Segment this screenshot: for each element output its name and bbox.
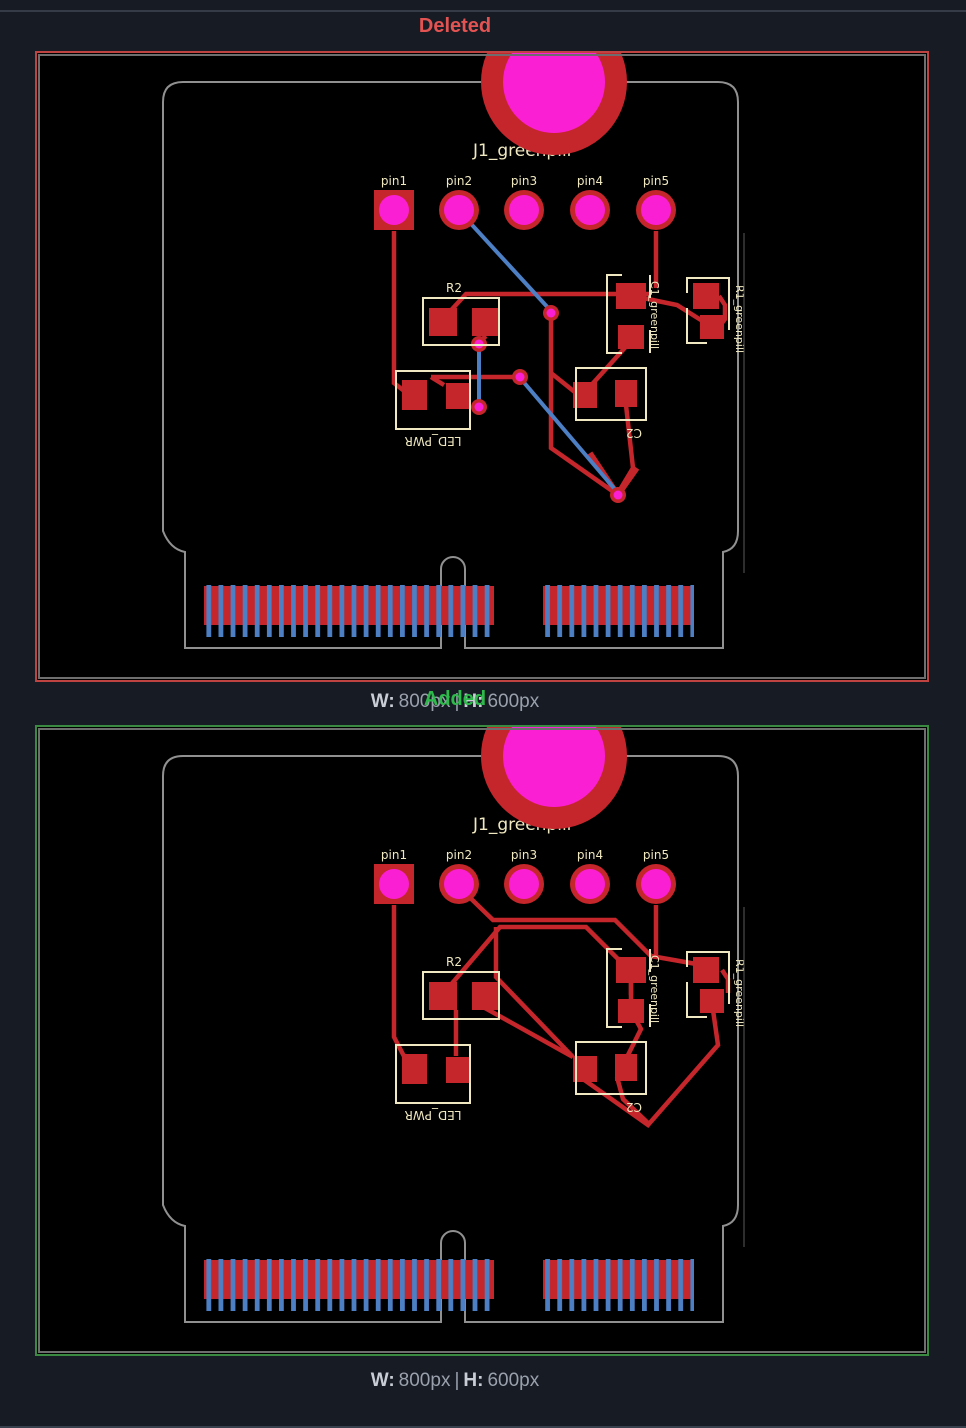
c1-greenpill-label: C1_greenpill — [648, 955, 661, 1023]
deleted-panel: J1_greenpill — [35, 51, 929, 682]
pin4-label: pin4 — [577, 848, 603, 862]
c1-greenpill-label: C1_greenpill — [648, 281, 661, 349]
deleted-title: Deleted — [0, 13, 910, 39]
led-pwr-label: LED_PWR — [405, 434, 462, 448]
edge-fingers-right — [543, 585, 694, 637]
deleted-caption-row: W:800px|H:600px Added — [0, 690, 910, 714]
c2-label: C2 — [626, 1100, 642, 1114]
top-divider — [0, 0, 966, 12]
pin2-label: pin2 — [446, 174, 472, 188]
r2-label: R2 — [446, 955, 462, 969]
added-title: Added — [0, 686, 910, 712]
pin3-label: pin3 — [511, 174, 537, 188]
edge-fingers-left — [204, 585, 494, 637]
added-dimensions: W:800px|H:600px — [0, 1369, 910, 1393]
pcb-render-added: J1_greenpill — [37, 727, 927, 1354]
edge-fingers-left — [204, 1259, 494, 1311]
added-panel: J1_greenpill — [35, 725, 929, 1356]
pin3-label: pin3 — [511, 848, 537, 862]
pin2-label: pin2 — [446, 848, 472, 862]
led-pwr-label: LED_PWR — [405, 1108, 462, 1122]
pin4-label: pin4 — [577, 174, 603, 188]
pin1-label: pin1 — [381, 848, 407, 862]
c2-label: C2 — [626, 426, 642, 440]
edge-fingers-right — [543, 1259, 694, 1311]
r2-label: R2 — [446, 281, 462, 295]
diff-page: Deleted J1_greenpill — [0, 0, 966, 1428]
pcb-render-deleted: J1_greenpill — [37, 53, 927, 680]
deleted-section-header: Deleted — [0, 12, 910, 39]
pin1-label: pin1 — [381, 174, 407, 188]
added-caption-row: W:800px|H:600px — [0, 1369, 910, 1393]
pin5-label: pin5 — [643, 848, 669, 862]
pin5-label: pin5 — [643, 174, 669, 188]
